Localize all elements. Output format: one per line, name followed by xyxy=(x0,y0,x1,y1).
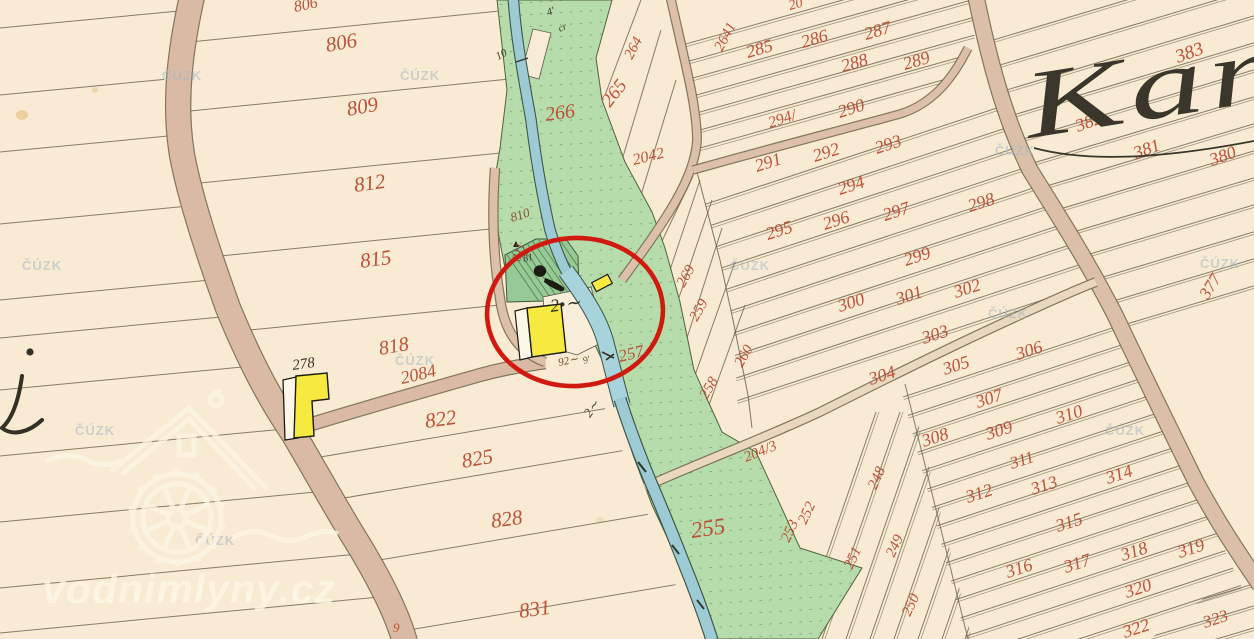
svg-text:9: 9 xyxy=(393,620,400,635)
svg-text:2•∼: 2•∼ xyxy=(549,292,582,316)
svg-text:278: 278 xyxy=(291,355,316,374)
svg-text:266: 266 xyxy=(544,100,577,126)
svg-text:812: 812 xyxy=(352,169,387,197)
svg-text:vodnimlyny.cz: vodnimlyny.cz xyxy=(42,566,336,612)
svg-text:ČÚZK: ČÚZK xyxy=(1200,256,1240,271)
svg-text:831: 831 xyxy=(517,595,552,623)
svg-text:ČÚZK: ČÚZK xyxy=(22,258,62,273)
svg-text:ČÚZK: ČÚZK xyxy=(730,258,770,273)
svg-text:822: 822 xyxy=(423,405,458,433)
svg-text:ČÚZK: ČÚZK xyxy=(395,353,435,368)
svg-text:ČÚZK: ČÚZK xyxy=(988,306,1028,321)
svg-text:ČÚZK: ČÚZK xyxy=(162,68,202,83)
svg-text:815: 815 xyxy=(358,245,393,273)
svg-text:ČÚZK: ČÚZK xyxy=(1105,423,1145,438)
svg-text:ČÚZK: ČÚZK xyxy=(995,143,1035,158)
svg-text:ČÚZK: ČÚZK xyxy=(400,68,440,83)
svg-text:ČÚZK: ČÚZK xyxy=(75,423,115,438)
svg-text:828: 828 xyxy=(489,505,524,533)
svg-text:255: 255 xyxy=(689,513,727,543)
